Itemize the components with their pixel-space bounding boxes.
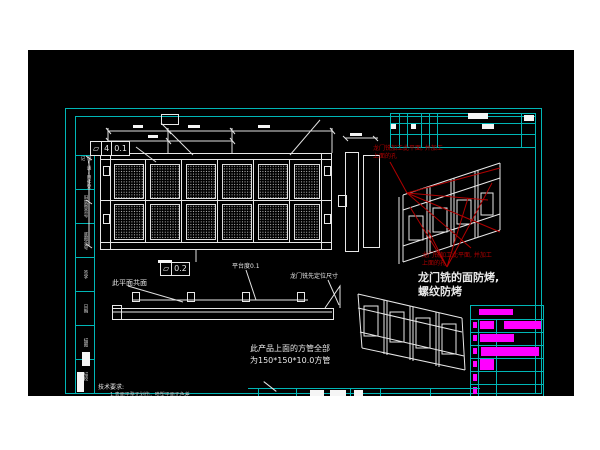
side-view-tab [338,195,347,207]
hatched-panel [114,164,144,199]
magenta-entry [473,335,477,341]
magenta-entry [473,361,477,367]
dim-text-blur [350,133,362,136]
gdt-frame-main: ⏥ 4 0.1 [90,141,130,156]
dim-text-blur [188,125,200,128]
tube-line2: 为150*150*10.0方管 [250,355,330,367]
magenta-entry [480,359,494,370]
dim-text-blur [148,135,158,138]
front-view [100,153,332,250]
mullion [253,160,254,242]
platform-post [297,292,305,302]
title-block-header-text-magenta [479,309,513,315]
bottom-table-line [248,388,480,389]
redacted-text-block [310,390,324,396]
end-fitting [103,166,110,176]
platform-post [132,292,140,302]
bottom-table-line [380,388,381,396]
red-machining-note-mid: 龙门铣加工此平面, 并加工 上面的孔 [422,252,532,268]
table-line [478,319,479,396]
hatched-panel [186,204,216,240]
red-note-line2: 上面的孔 [373,153,473,161]
platform-flatness-note: 平台度0.1 [232,261,260,270]
hatched-panel [186,164,216,199]
table-line [496,319,497,396]
protect-line2: 螺纹防烤 [418,285,499,299]
mullion [217,160,218,242]
mullion [289,160,290,242]
isometric-view-lower [358,294,465,370]
hatched-panel [150,204,180,240]
magenta-entry [473,374,477,381]
view-line [101,200,331,201]
magenta-entry [504,321,541,329]
red-note-line1: 龙门铣加工此平面, 并加工 [373,145,473,153]
dim-text-blur [258,125,270,128]
magenta-entry [480,321,494,329]
bottom-table-line [258,388,259,396]
magenta-entry [473,322,477,328]
protect-line1: 龙门铣的面防烤, [418,271,499,285]
end-fitting [324,214,331,224]
red-note-line2: 上面的孔 [422,260,532,268]
title-block-table [470,305,544,396]
mullion [181,160,182,242]
side-view-member-2 [363,155,380,248]
magenta-entry [481,347,539,356]
platform-post [242,292,250,302]
hatched-panel [222,204,252,240]
magenta-entry [473,348,477,354]
screenshot-root: { "colors": {"cyan": "#00b6b6", "magenta… [0,0,600,450]
view-line [101,242,331,243]
hatched-panel [258,164,288,199]
coplanar-note: 此平面共面 [112,278,147,288]
dim-text-blur [133,125,143,128]
red-note-line1: 龙门铣加工此平面, 并加工 [422,252,532,260]
red-machining-note-top: 龙门铣加工此平面, 并加工 上面的孔 [373,145,473,161]
gdt-tolerance: 0.1 [112,142,129,155]
gdt-frame-platform: ⏥ 0.2 [160,262,190,276]
tech-requirements-title: 技术要求: [98,382,124,391]
hatched-panel [294,164,320,199]
table-line [471,345,543,346]
gdt-tolerance: 0.2 [172,263,189,275]
bottom-table-line [350,388,351,396]
platform-bar [112,308,334,320]
hatched-panel [150,164,180,199]
dim-text-blur [158,260,172,263]
redacted-text-block [330,390,346,396]
hatched-panel [294,204,320,240]
table-line [471,371,543,372]
tech-requirements-item: 1.表面平整无划伤，喷塑平面无色差 [110,391,190,396]
end-fitting [324,166,331,176]
cad-drawing-canvas: 借(通)用件登记 旧底图总号 底图总号 签字 日期 描图 描校 [28,50,574,396]
view-line [101,159,331,160]
protect-note: 龙门铣的面防烤, 螺纹防烤 [418,271,499,300]
redacted-text-block [354,390,363,396]
platform-post [187,292,195,302]
square-tube-note: 此产品上面的方管全部 为150*150*10.0方管 [250,343,330,367]
hatched-panel [258,204,288,240]
table-line [471,384,543,385]
magenta-entry [480,334,514,342]
gdt-datum: 4 [102,142,112,155]
view-line [110,154,111,249]
table-line [471,319,543,320]
flatness-symbol-icon: ⏥ [161,263,172,275]
gantry-locating-note: 龙门铣先定位尺寸 [290,271,338,280]
detail-callout-box [161,114,179,125]
hatched-panel [222,164,252,199]
flatness-symbol-icon: ⏥ [91,142,102,155]
bottom-table-line [430,388,431,396]
side-view-member-1 [345,152,359,252]
view-line [321,154,322,249]
hatched-panel [114,204,144,240]
platform-end-cap [112,305,122,320]
tube-line1: 此产品上面的方管全部 [250,343,330,355]
table-line [471,332,543,333]
end-fitting [103,214,110,224]
mullion [145,160,146,242]
bottom-table-line [296,388,297,396]
